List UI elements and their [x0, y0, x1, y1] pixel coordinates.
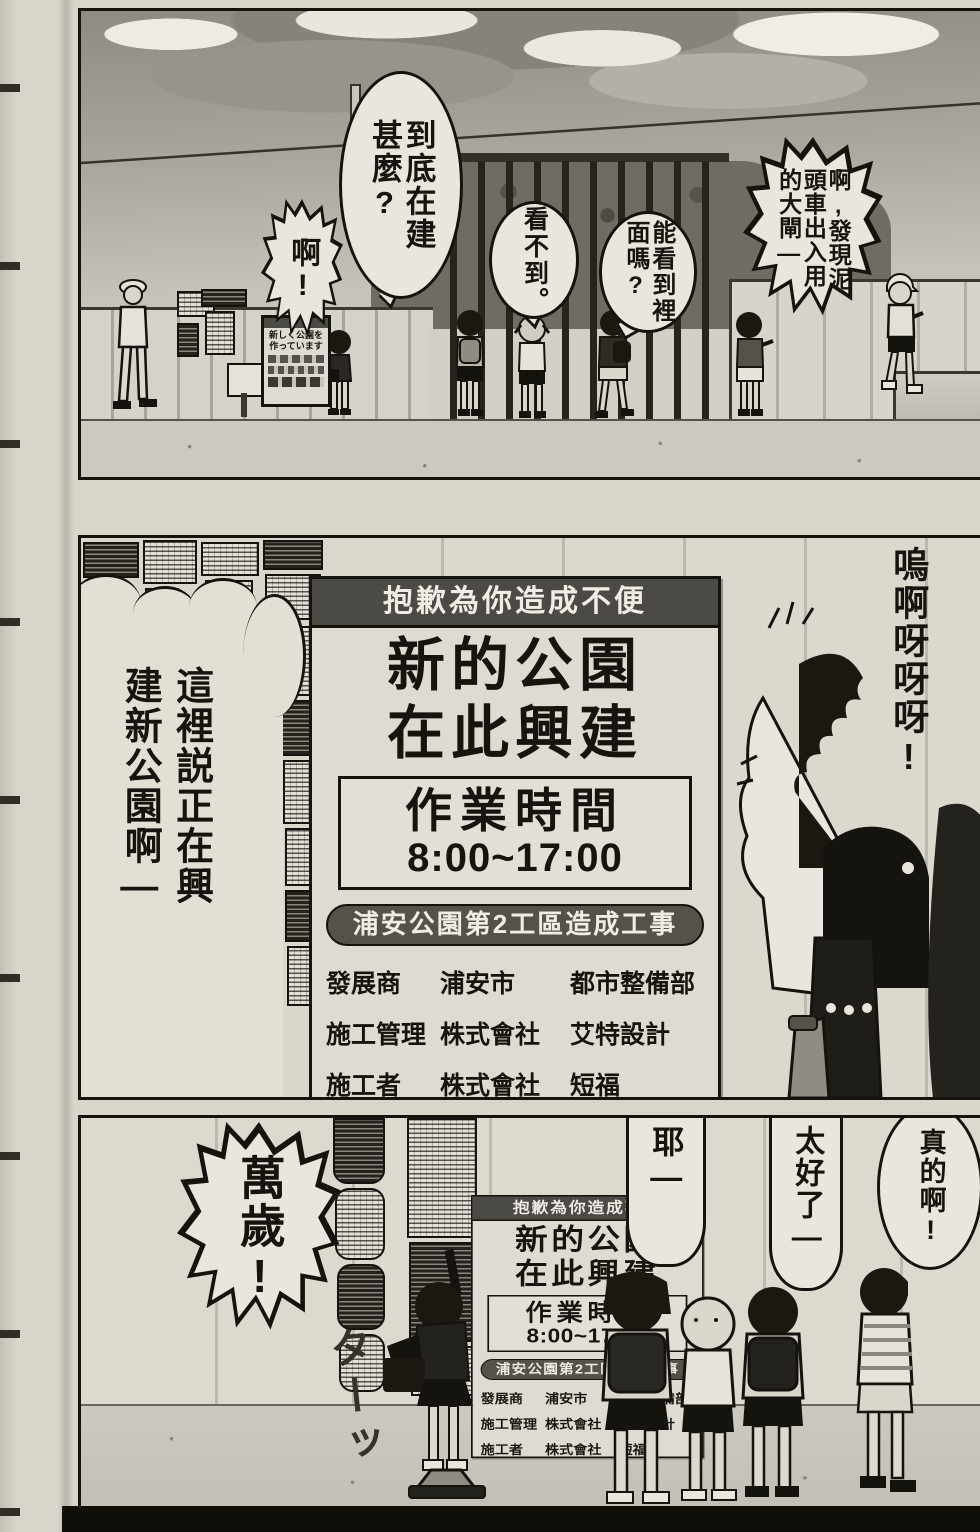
man-walking [103, 273, 163, 423]
speech-bubble-cant-see: 看不到。 [489, 201, 579, 319]
bubble-gate-text: 啊,發現泥 頭車出入用 的大閘— [743, 137, 883, 321]
poster [407, 1118, 477, 1238]
credit-cell: 株式會社 [440, 1015, 568, 1051]
bubble-really-text: 真的啊! [915, 1128, 944, 1247]
poster [143, 540, 197, 584]
credit-cell: 短福 [570, 1066, 714, 1100]
credit-cell: 施工管理 [326, 1015, 438, 1051]
scream-text: 嗚啊呀呀呀! [887, 546, 930, 779]
bubble-what-text: 到底在建 甚麼? [368, 119, 435, 251]
panel-3: 抱歉為你造成不便 新的公園 在此興建 作業時間 8:00~17:00 浦安公園第… [78, 1115, 980, 1510]
boy-backpack-front [563, 1270, 708, 1510]
bubble-ah-text: 啊! [261, 199, 343, 341]
speech-bubble-what: 到底在建 甚麼? [339, 71, 463, 299]
sign-credits-table: 發展商 浦安市 都市整備部 施工管理 株式會社 艾特設計 施工者 株式會社 短福 [326, 964, 708, 1100]
credit-cell: 施工者 [326, 1066, 438, 1100]
boys-looking-up [703, 568, 980, 1098]
poster [263, 540, 323, 570]
speech-bubble-really: 真的啊! [877, 1115, 980, 1270]
sign-title-line2: 在此興建 [312, 704, 718, 764]
standing-signboard-post [241, 393, 247, 417]
credit-cell: 株式會社 [440, 1066, 568, 1100]
sign-header-text: 抱歉為你造成不便 [312, 579, 718, 628]
page-binding-edge [0, 0, 20, 1532]
flash-bubble-gate: 啊,發現泥 頭車出入用 的大閘— [743, 137, 883, 321]
fence-poster [205, 311, 235, 355]
kid-pointing [729, 311, 775, 423]
bubble-yeah-text: 耶— [649, 1125, 684, 1197]
manga-page: 新しく公園を 作っています [0, 0, 980, 1532]
sign-title-line1: 新的公園 [312, 636, 718, 696]
sign-hours-box: 作業時間 8:00~17:00 [338, 776, 692, 890]
sign-project-band: 浦安公園第2工區造成工事 [326, 904, 704, 946]
boy-backpack-right [715, 1286, 830, 1510]
kid-peeking [509, 315, 555, 423]
sign-hours-value: 8:00~17:00 [341, 837, 689, 879]
page-fold-shadow [58, 0, 74, 1532]
construction-sign: 抱歉為你造成不便 新的公園 在此興建 作業時間 8:00~17:00 浦安公園第… [309, 576, 721, 1100]
poster [83, 542, 139, 578]
fence-poster [177, 323, 199, 357]
sign-hours-label: 作業時間 [341, 785, 689, 837]
fence-poster [201, 289, 247, 307]
credit-cell: 發展商 [326, 964, 438, 1000]
speech-bubble-yeah: 耶— [626, 1115, 706, 1267]
cloud-scallop [243, 594, 306, 717]
girl-on-cone [353, 1230, 533, 1510]
credit-cell: 浦安市 [440, 964, 568, 1000]
credit-cell: 艾特設計 [570, 1015, 714, 1051]
bubble-see-inside-text: 能看到裡 面嗎? [622, 220, 674, 324]
credit-cell: 都市整備部 [570, 964, 714, 1000]
page-bottom-edge [62, 1506, 980, 1532]
flash-bubble-banzai: 萬歲! [177, 1122, 341, 1336]
panel-2: 這裡説正在興 建新公園啊— 抱歉為你造成不便 新的公園 在此興建 作業時間 8:… [78, 535, 980, 1100]
boy-striped-shirt [838, 1266, 938, 1510]
panel-1: 新しく公園を 作っています [78, 8, 980, 480]
speech-bubble-great: 太好了— [769, 1115, 843, 1291]
bubble-great-text: 太好了— [790, 1125, 822, 1256]
kid-backpack-girl [447, 309, 493, 421]
flash-bubble-ah: 啊! [261, 199, 343, 341]
ground [81, 419, 980, 480]
poster [201, 542, 259, 576]
speech-bubble-see-inside: 能看到裡 面嗎? [599, 211, 697, 333]
bubble-cant-see-text: 看不到。 [521, 206, 548, 314]
cloud-scallop [133, 586, 197, 641]
bubble-banzai-text: 萬歲! [177, 1122, 341, 1336]
narration-text: 這裡説正在興 建新公園啊— [113, 666, 216, 910]
